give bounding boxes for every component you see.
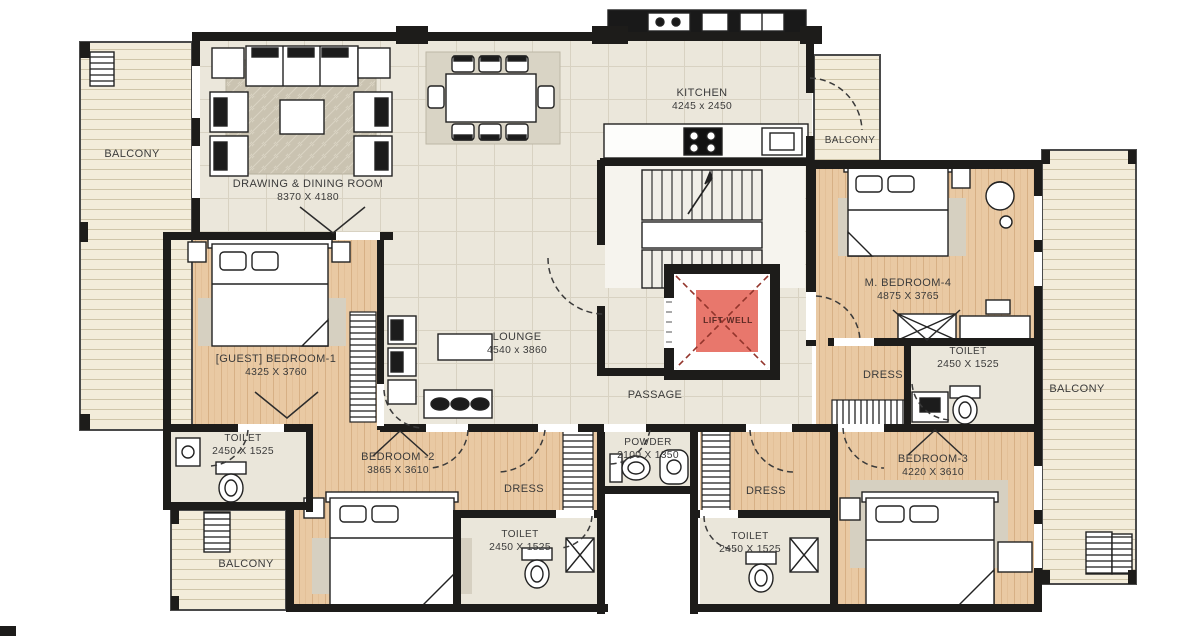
room-name: BALCONY — [1049, 382, 1104, 396]
label-passage: PASSAGE — [628, 388, 683, 402]
room-dims: 4540 x 3860 — [487, 344, 547, 357]
label-balcony-right: BALCONY — [1049, 382, 1104, 396]
room-name: BALCONY — [825, 134, 876, 147]
guest-bed — [188, 238, 350, 346]
room-name: TOILET — [937, 345, 999, 358]
label-toilet-guest: TOILET 2450 X 1525 — [212, 432, 274, 458]
label-lounge: LOUNGE 4540 x 3860 — [487, 330, 547, 358]
room-name: DRESS — [504, 482, 544, 496]
label-dress-left: DRESS — [504, 482, 544, 496]
label-dress-right: DRESS — [746, 484, 786, 498]
room-name: POWDER — [617, 436, 679, 449]
room-name: PASSAGE — [628, 388, 683, 402]
room-name: LOUNGE — [487, 330, 547, 344]
label-bedroom-3: BEDROOM-3 4220 X 3610 — [898, 452, 968, 480]
room-dims: 4220 X 3610 — [898, 466, 968, 479]
label-guest-bedroom-1: [GUEST] BEDROOM-1 4325 X 3760 — [216, 352, 336, 380]
room-dims: 8370 X 4180 — [233, 191, 383, 204]
floor-plan-drawing — [0, 0, 1200, 636]
room-dims: 2450 X 1525 — [212, 445, 274, 458]
room-dims: 2450 X 1525 — [937, 358, 999, 371]
room-name: BALCONY — [218, 557, 273, 571]
label-toilet-m4: TOILET 2450 X 1525 — [937, 345, 999, 371]
room-dims: 4875 X 3765 — [865, 290, 952, 303]
room-name: LIFT WELL — [703, 315, 753, 326]
label-powder: POWDER 2100 X 1350 — [617, 436, 679, 462]
room-dims: 3865 X 3610 — [361, 464, 435, 477]
room-name: DRESS — [863, 368, 903, 382]
room-dims: 2100 X 1350 — [617, 449, 679, 462]
room-dims: 2450 X 1525 — [719, 543, 781, 556]
room-name: BEDROOM-3 — [898, 452, 968, 466]
room-name: BALCONY — [104, 147, 159, 161]
label-bedroom-2: BEDROOM -2 3865 X 3610 — [361, 450, 435, 478]
label-toilet-bottom-left: TOILET 2450 X 1525 — [489, 528, 551, 554]
room-name: DRAWING & DINING ROOM — [233, 177, 383, 191]
room-name: TOILET — [489, 528, 551, 541]
label-dress-m4: DRESS — [863, 368, 903, 382]
label-toilet-bottom-right: TOILET 2450 X 1525 — [719, 530, 781, 556]
label-balcony-top-left: BALCONY — [104, 147, 159, 161]
label-kitchen: KITCHEN 4245 x 2450 — [672, 86, 732, 114]
label-m-bedroom-4: M. BEDROOM-4 4875 X 3765 — [865, 276, 952, 304]
label-balcony-kitchen: BALCONY — [825, 134, 876, 147]
room-name: BEDROOM -2 — [361, 450, 435, 464]
label-balcony-bottom-left: BALCONY — [218, 557, 273, 571]
room-name: KITCHEN — [672, 86, 732, 100]
room-name: [GUEST] BEDROOM-1 — [216, 352, 336, 366]
room-name: TOILET — [719, 530, 781, 543]
floor-plan: BALCONY DRAWING & DINING ROOM 8370 X 418… — [0, 0, 1200, 636]
room-name: M. BEDROOM-4 — [865, 276, 952, 290]
label-lift-well: LIFT WELL — [703, 315, 753, 326]
room-name: DRESS — [746, 484, 786, 498]
room-name: TOILET — [212, 432, 274, 445]
room-dims: 2450 X 1525 — [489, 541, 551, 554]
label-drawing-dining: DRAWING & DINING ROOM 8370 X 4180 — [233, 177, 383, 205]
room-dims: 4325 X 3760 — [216, 366, 336, 379]
room-dims: 4245 x 2450 — [672, 100, 732, 113]
